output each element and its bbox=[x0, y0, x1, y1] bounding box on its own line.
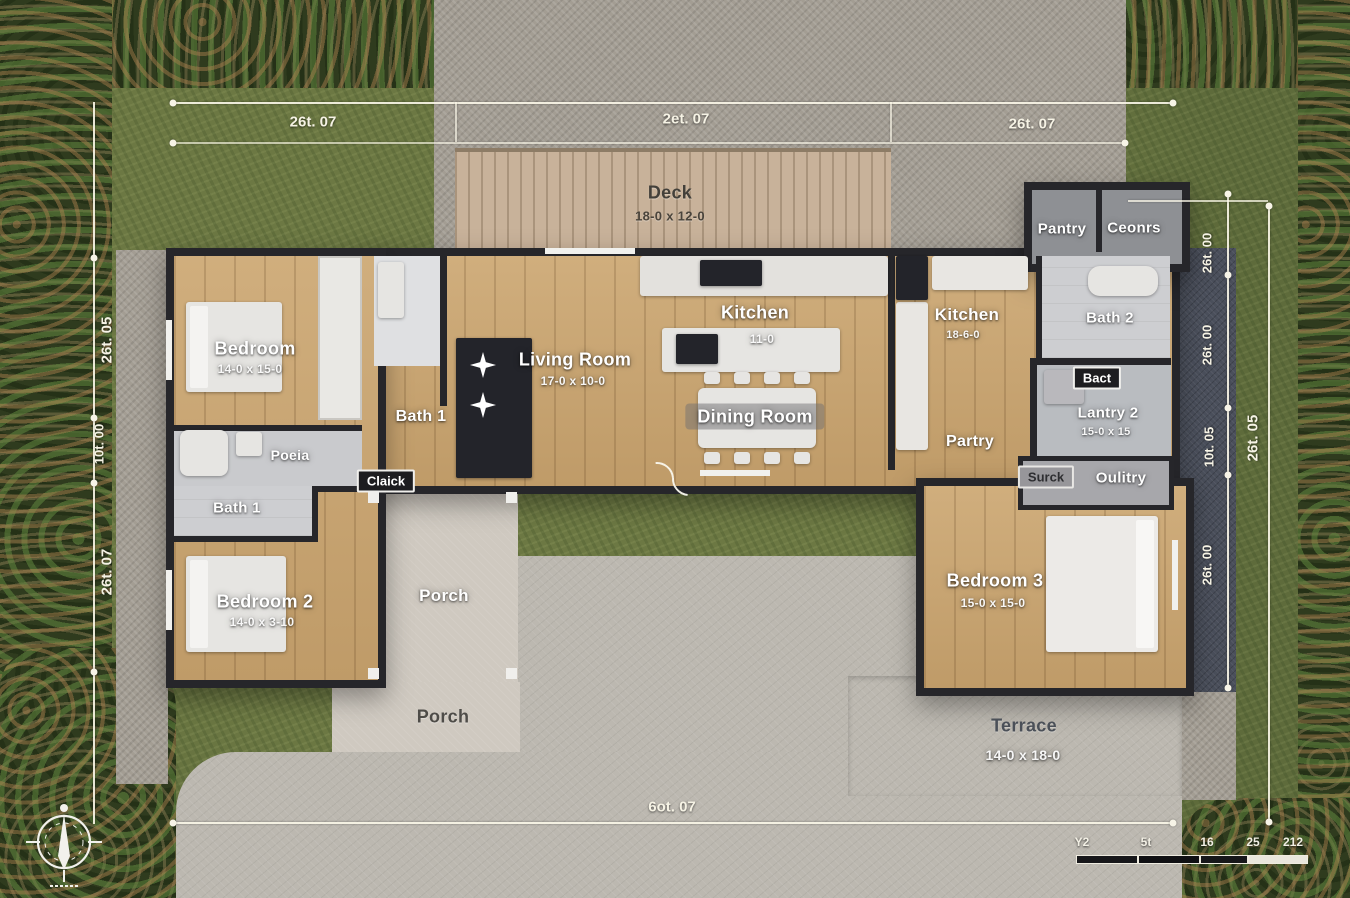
dimline-bottom bbox=[173, 822, 1173, 824]
dim-dot bbox=[91, 480, 98, 487]
tag-bact: Bact bbox=[1073, 367, 1121, 390]
room-dims-bedroom2: 14-0 x 3-10 bbox=[230, 615, 295, 629]
deck-floor bbox=[455, 148, 891, 260]
dimline-top-2 bbox=[173, 142, 1125, 144]
dim-dot bbox=[91, 669, 98, 676]
room-label-porch1: Porch bbox=[419, 586, 469, 606]
tub-poeia bbox=[180, 430, 228, 476]
scale-label-4: 212 bbox=[1283, 835, 1303, 849]
scale-label-3: 25 bbox=[1246, 835, 1259, 849]
dimline-right-outer bbox=[1268, 205, 1270, 822]
dim-label-top-right: 26t. 07 bbox=[1009, 116, 1056, 133]
floorplan-canvas: 26t. 07 2et. 07 26t. 07 6ot. 07 26t. 05 … bbox=[0, 0, 1350, 898]
room-dims-kitchen2: 18-6-0 bbox=[946, 329, 980, 341]
dimline-right-inner bbox=[1227, 193, 1229, 690]
dim-label-left-3: 26t. 07 bbox=[99, 549, 116, 596]
dim-dot bbox=[1225, 191, 1232, 198]
dim-dot bbox=[170, 820, 177, 827]
bedroom1-closet bbox=[318, 256, 362, 420]
scale-label-1: 5t bbox=[1141, 835, 1152, 849]
dim-label-top-left: 26t. 07 bbox=[290, 114, 337, 131]
dim-label-right-outer: 26t. 05 bbox=[1245, 415, 1262, 462]
dim-label-bottom: 6ot. 07 bbox=[648, 799, 696, 816]
room-label-partry: Partry bbox=[946, 433, 994, 451]
pantry-divider-wall bbox=[1096, 186, 1102, 252]
dim-dot bbox=[91, 415, 98, 422]
chair bbox=[704, 452, 720, 464]
room-label-lantry2: Lantry 2 bbox=[1078, 405, 1139, 422]
tag-surck: Surck bbox=[1018, 466, 1074, 489]
dim-dot bbox=[1170, 100, 1177, 107]
window-top-1 bbox=[545, 248, 635, 254]
cooktop bbox=[700, 260, 762, 286]
room-dims-living: 17-0 x 10-0 bbox=[541, 374, 606, 388]
porch-column bbox=[368, 492, 379, 503]
room-label-terrace: Terrace bbox=[991, 716, 1057, 737]
window-left-2 bbox=[166, 570, 172, 630]
room-label-deck: Deck bbox=[648, 183, 692, 204]
kitchen2-counter bbox=[896, 302, 928, 450]
scale-segment bbox=[1200, 855, 1248, 864]
dim-dot bbox=[1225, 405, 1232, 412]
dim-dot bbox=[1225, 472, 1232, 479]
window-right-1 bbox=[1172, 540, 1178, 610]
dim-label-left-1: 26t. 05 bbox=[99, 317, 116, 364]
room-label-living: Living Room bbox=[519, 350, 631, 371]
scale-label-2: 16 bbox=[1200, 835, 1213, 849]
room-dims-bedroom3: 15-0 x 15-0 bbox=[961, 596, 1026, 610]
dimtick bbox=[455, 102, 457, 142]
room-label-bedroom3: Bedroom 3 bbox=[947, 571, 1044, 592]
room-label-bedroom1: Bedroom bbox=[214, 339, 295, 360]
bed2-pillows bbox=[190, 560, 208, 648]
chair bbox=[764, 452, 780, 464]
fridge bbox=[896, 256, 928, 300]
chair bbox=[794, 372, 810, 384]
bath1-upper-wall bbox=[440, 256, 447, 406]
compass-icon bbox=[24, 800, 104, 890]
kitchen-counter-top bbox=[640, 256, 888, 296]
island-sink bbox=[676, 334, 718, 364]
bath1-vanity bbox=[378, 262, 404, 318]
gravel-path-left bbox=[116, 250, 168, 784]
dimline-right-connector bbox=[1128, 200, 1268, 202]
bed1-pillows bbox=[190, 306, 208, 388]
dim-dot bbox=[1266, 203, 1273, 210]
room-dims-bedroom1: 14-0 x 15-0 bbox=[218, 362, 283, 376]
room-dims-terrace: 14-0 x 18-0 bbox=[986, 747, 1061, 763]
room-label-dining: Dining Room bbox=[685, 404, 824, 430]
dim-dot bbox=[1225, 685, 1232, 692]
window-left-1 bbox=[166, 320, 172, 380]
dimline-top bbox=[173, 102, 1173, 104]
room-dims-kitchen-main: 11-0 bbox=[750, 332, 775, 346]
room-label-porch2: Porch bbox=[417, 707, 470, 728]
gravel-right-bottom bbox=[1180, 692, 1236, 800]
window-bottom-1 bbox=[700, 470, 770, 476]
room-label-pantry-top: Pantry bbox=[1038, 221, 1087, 238]
porch-column bbox=[368, 668, 379, 679]
room-label-poeia: Poeia bbox=[271, 447, 310, 463]
chair bbox=[794, 452, 810, 464]
kitchen2-wall bbox=[888, 256, 895, 470]
scale-segment bbox=[1138, 855, 1200, 864]
chair bbox=[764, 372, 780, 384]
dim-label-right-4: 26t. 00 bbox=[1200, 545, 1215, 585]
dim-dot bbox=[1225, 272, 1232, 279]
room-label-bedroom2: Bedroom 2 bbox=[217, 592, 314, 613]
washer bbox=[236, 432, 262, 456]
room-label-kitchen2: Kitchen bbox=[935, 305, 999, 325]
scale-segment bbox=[1076, 855, 1138, 864]
dim-dot bbox=[1122, 140, 1129, 147]
dim-label-right-3: 10t. 05 bbox=[1202, 427, 1217, 467]
porch-column bbox=[506, 668, 517, 679]
dim-dot bbox=[170, 100, 177, 107]
room-label-bath2: Bath 2 bbox=[1086, 310, 1134, 327]
dimtick bbox=[890, 102, 892, 142]
chair bbox=[734, 372, 750, 384]
scale-segment bbox=[1248, 855, 1308, 864]
foliage-right bbox=[1298, 0, 1350, 898]
room-dims-lantry2: 15-0 x 15 bbox=[1081, 426, 1130, 438]
dim-label-right-1: 26t. 00 bbox=[1200, 233, 1215, 273]
chair bbox=[734, 452, 750, 464]
dim-dot bbox=[1266, 819, 1273, 826]
tag-claick: Claick bbox=[357, 470, 415, 493]
room-dims-deck: 18-0 x 12-0 bbox=[635, 209, 705, 224]
scale-label-0: Y2 bbox=[1075, 835, 1090, 849]
dim-dot bbox=[91, 255, 98, 262]
kitchen2-counter-top bbox=[932, 256, 1028, 290]
room-label-oulitry: Oulitry bbox=[1096, 470, 1146, 487]
room-label-kitchen-main: Kitchen bbox=[721, 303, 789, 324]
chair bbox=[704, 372, 720, 384]
dim-label-right-2: 26t. 00 bbox=[1200, 325, 1215, 365]
dim-dot bbox=[170, 140, 177, 147]
room-label-bath1-upper: Bath 1 bbox=[396, 408, 447, 426]
room-label-ceonrs: Ceonrs bbox=[1107, 220, 1160, 237]
room-label-bath1-lower: Bath 1 bbox=[213, 500, 261, 517]
dim-label-left-2: 10t. 00 bbox=[92, 424, 107, 464]
bathtub bbox=[1088, 266, 1158, 296]
dim-label-top-center: 2et. 07 bbox=[663, 111, 710, 128]
bed3-pillows bbox=[1136, 520, 1154, 648]
porch-column bbox=[506, 492, 517, 503]
dim-dot bbox=[1170, 820, 1177, 827]
